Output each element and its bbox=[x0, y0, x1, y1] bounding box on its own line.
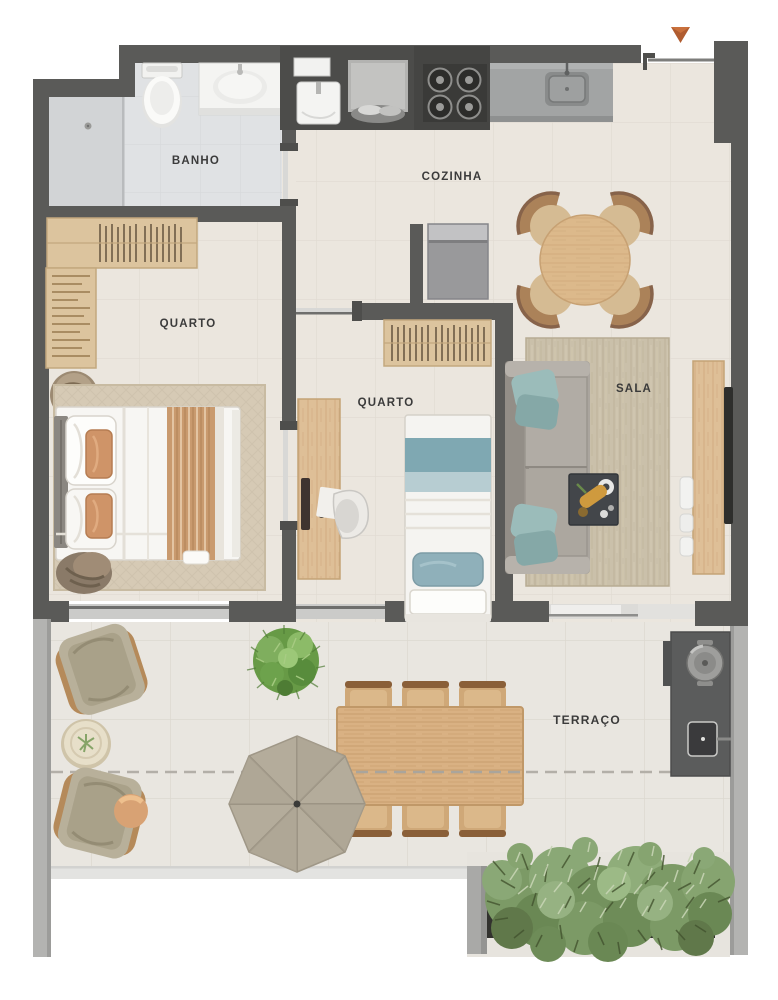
svg-text:BANHO: BANHO bbox=[172, 155, 220, 167]
svg-text:QUARTO: QUARTO bbox=[358, 397, 415, 409]
svg-text:QUARTO: QUARTO bbox=[160, 318, 217, 330]
svg-text:SALA: SALA bbox=[616, 383, 652, 395]
svg-text:TERRAÇO: TERRAÇO bbox=[553, 713, 621, 727]
svg-text:COZINHA: COZINHA bbox=[422, 171, 483, 183]
